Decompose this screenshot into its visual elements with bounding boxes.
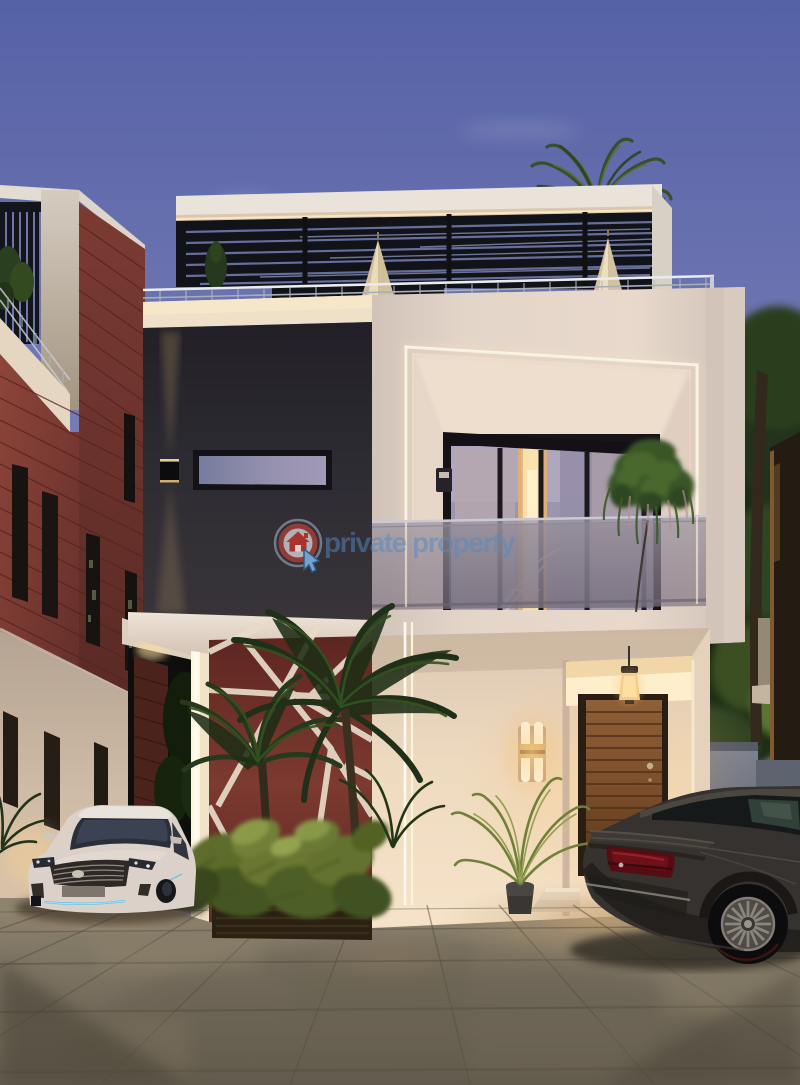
svg-text:private property: private property bbox=[324, 527, 516, 558]
